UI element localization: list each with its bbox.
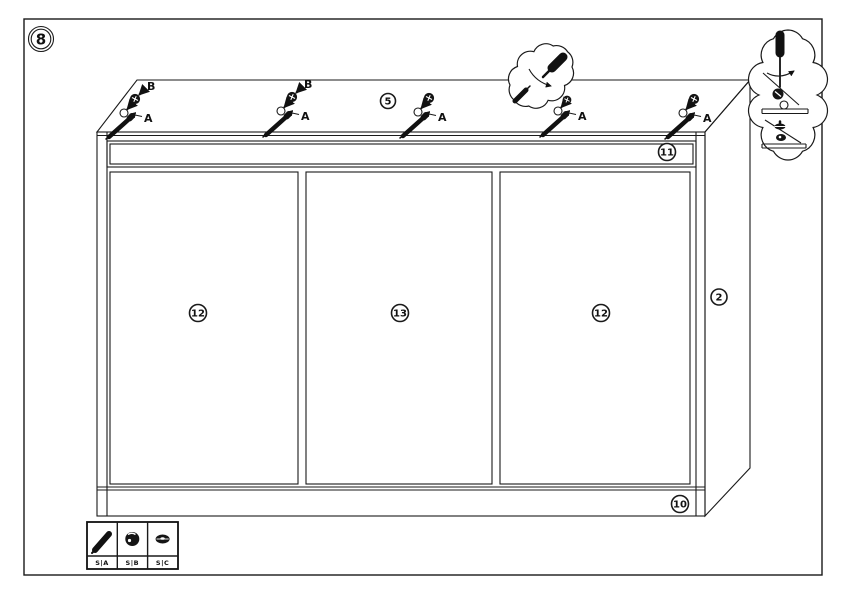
hardware-legend: S|A S|B S|C	[87, 522, 178, 569]
fastener-group-2: A B	[263, 78, 312, 137]
callout-right-door: 12	[593, 305, 610, 322]
hole-label: A	[703, 112, 712, 125]
cam-disc-detail-icon	[776, 134, 786, 141]
legend-code-1: S|A	[95, 559, 109, 568]
insert-arrow	[128, 104, 133, 109]
callout-number: 12	[594, 309, 608, 320]
top-rail-inner	[110, 144, 693, 164]
cam-bolt-icon	[130, 94, 139, 103]
bolt-label: B	[304, 78, 312, 91]
front-face	[97, 132, 705, 516]
hole-label: A	[144, 112, 153, 125]
hole-label: A	[578, 110, 587, 123]
insert-arrow	[285, 102, 290, 107]
callout-number: 5	[385, 96, 392, 107]
hole-label: A	[301, 110, 310, 123]
cam-bolt-icon	[563, 96, 571, 104]
step-number: 8	[36, 31, 46, 49]
pilot-hole-icon	[414, 108, 422, 116]
screw-icon	[400, 115, 426, 138]
callout-top-screw-pack: 5	[381, 94, 396, 109]
callout-center-door: 13	[392, 305, 409, 322]
callout-left-door: 12	[190, 305, 207, 322]
bolt-label: B	[147, 80, 155, 93]
callout-number: 2	[716, 293, 723, 304]
assembly-instruction-page: 8	[0, 0, 842, 595]
screw-icon	[263, 114, 289, 137]
cam-bolt-icon	[424, 93, 433, 102]
cam-lock-icon	[125, 532, 139, 546]
insert-arrow	[422, 103, 427, 108]
callout-number: 13	[393, 309, 407, 320]
callout-top-rail: 11	[659, 144, 676, 161]
pilot-hole-icon	[679, 109, 687, 117]
callout-side-panel: 2	[711, 289, 727, 305]
pilot-hole-icon	[554, 107, 562, 115]
screw-icon	[540, 114, 566, 137]
callout-number: 10	[673, 500, 687, 511]
fastener-group-3: A	[400, 93, 447, 138]
label-b-arrow	[140, 89, 146, 95]
label-b-arrow	[297, 87, 303, 93]
callout-number: 12	[191, 309, 205, 320]
door-right	[500, 172, 690, 484]
callout-bottom-rail: 10	[672, 496, 689, 513]
page-border	[24, 19, 822, 575]
step-badge: 8	[29, 27, 54, 52]
legend-code-3: S|C	[156, 559, 169, 568]
cam-disc-icon	[156, 535, 170, 544]
detail-cloud	[749, 30, 828, 160]
cam-lock-detail-icon	[773, 89, 784, 100]
pilot-hole-icon	[120, 109, 128, 117]
cam-bolt-icon	[689, 94, 698, 103]
top-rail	[107, 141, 696, 167]
wardrobe-drawing	[97, 80, 750, 516]
door-center	[306, 172, 492, 484]
insert-arrow	[687, 104, 692, 109]
pilot-hole-icon	[277, 107, 285, 115]
hole-label: A	[438, 111, 447, 124]
callout-number: 11	[660, 148, 674, 159]
cam-bolt-icon	[287, 92, 296, 101]
door-left	[110, 172, 298, 484]
legend-code-2: S|B	[126, 559, 140, 568]
